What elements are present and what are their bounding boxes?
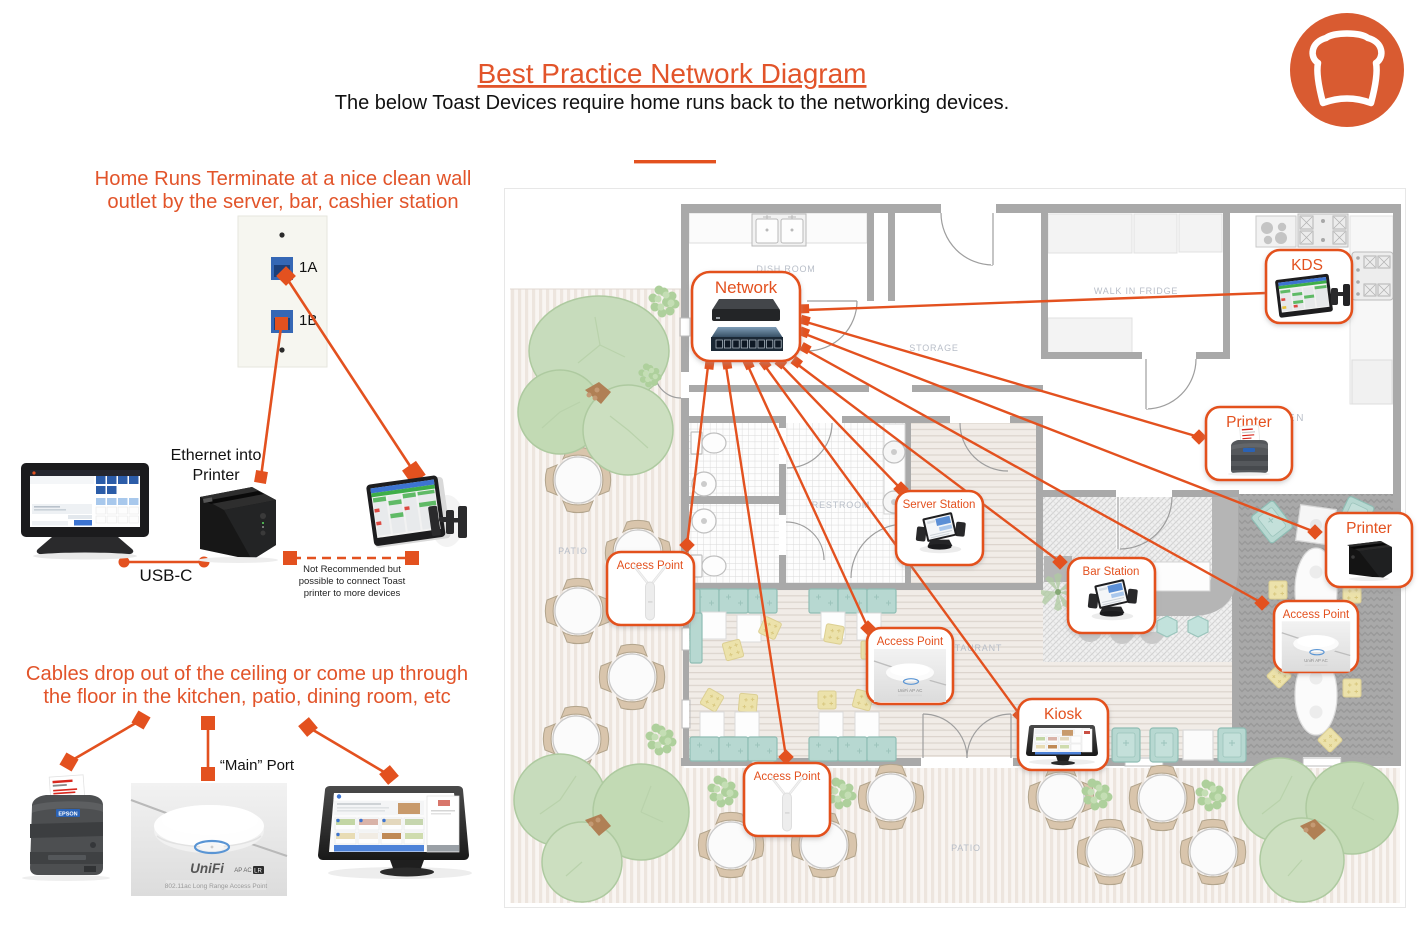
svg-text:EPSON: EPSON xyxy=(58,812,77,818)
svg-text:RESTROOM: RESTROOM xyxy=(812,500,870,510)
svg-text:WALK IN FRIDGE: WALK IN FRIDGE xyxy=(1094,286,1178,296)
svg-text:Home Runs Terminate at a nice: Home Runs Terminate at a nice clean wall xyxy=(95,168,472,190)
svg-text:PATIO: PATIO xyxy=(951,843,981,853)
svg-text:LR: LR xyxy=(254,869,262,875)
svg-text:Access Point: Access Point xyxy=(877,636,944,648)
svg-text:The below Toast Devices requir: The below Toast Devices require home run… xyxy=(335,92,1009,114)
svg-text:printer to more devices: printer to more devices xyxy=(304,588,401,599)
svg-text:Not Recommended but: Not Recommended but xyxy=(303,564,401,575)
svg-text:Access Point: Access Point xyxy=(1283,609,1350,621)
svg-text:the floor in the kitchen, pati: the floor in the kitchen, patio, dining … xyxy=(43,686,450,708)
svg-text:STORAGE: STORAGE xyxy=(909,343,958,353)
svg-text:Network: Network xyxy=(715,278,778,297)
svg-text:Printer: Printer xyxy=(1346,520,1392,537)
svg-text:PATIO: PATIO xyxy=(558,546,588,556)
svg-text:UniFi: UniFi xyxy=(190,861,224,876)
svg-text:“Main” Port: “Main” Port xyxy=(220,757,295,774)
svg-text:Access Point: Access Point xyxy=(617,560,684,572)
svg-text:Cables drop out of the ceiling: Cables drop out of the ceiling or come u… xyxy=(26,663,468,685)
svg-text:Access Point: Access Point xyxy=(754,771,821,783)
svg-text:outlet by the server, bar, cas: outlet by the server, bar, cashier stati… xyxy=(107,191,458,213)
svg-text:Printer: Printer xyxy=(192,467,240,484)
svg-text:Ethernet into: Ethernet into xyxy=(171,447,262,464)
svg-text:Best Practice Network Diagram: Best Practice Network Diagram xyxy=(477,58,866,89)
svg-text:802.11ac Long Range Access Poi: 802.11ac Long Range Access Point xyxy=(165,883,268,890)
svg-text:Server Station: Server Station xyxy=(903,499,976,511)
svg-text:AP AC: AP AC xyxy=(234,868,252,874)
svg-text:Bar Station: Bar Station xyxy=(1083,566,1140,578)
svg-text:1A: 1A xyxy=(299,259,317,276)
svg-text:Kiosk: Kiosk xyxy=(1044,706,1082,723)
svg-text:possible to connect Toast: possible to connect Toast xyxy=(299,576,406,587)
svg-text:KDS: KDS xyxy=(1291,257,1323,274)
svg-text:USB-C: USB-C xyxy=(140,566,193,585)
